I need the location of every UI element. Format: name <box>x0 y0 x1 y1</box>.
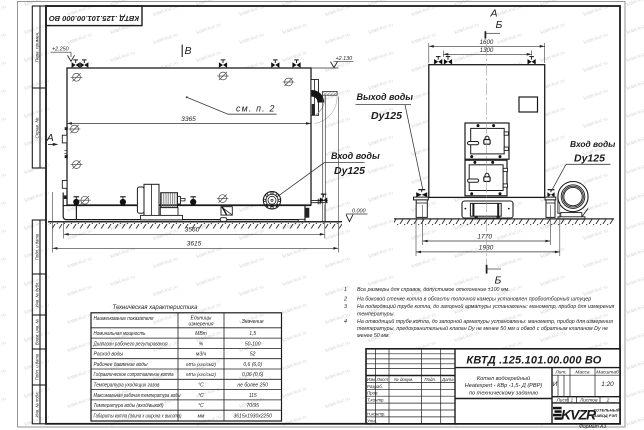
svg-text:Масштаб: Масштаб <box>596 370 619 376</box>
svg-text:Вход воды: Вход воды <box>331 151 380 161</box>
svg-text:°С: °С <box>198 403 204 409</box>
svg-text:2: 2 <box>606 398 610 404</box>
svg-text:В: В <box>185 45 192 57</box>
svg-text:1,5: 1,5 <box>249 331 256 337</box>
svg-text:Dy125: Dy125 <box>334 165 365 177</box>
svg-text:Котел водогрейный: Котел водогрейный <box>477 375 530 382</box>
svg-text:Лист: Лист <box>376 377 389 382</box>
svg-text:Выход воды: Выход воды <box>357 92 414 102</box>
svg-text:КВТД .125.101.00.000 ВО: КВТД .125.101.00.000 ВО <box>49 14 139 23</box>
svg-text:Heatexpert - КВр -1,5- Д (РВР): Heatexpert - КВр -1,5- Д (РВР) <box>465 383 543 389</box>
svg-text:Температура уходящих газов: Температура уходящих газов <box>94 383 160 389</box>
svg-text:А3: А3 <box>599 424 606 430</box>
svg-text:°С: °С <box>198 393 204 399</box>
svg-text:1: 1 <box>344 287 347 293</box>
svg-text:Дата: Дата <box>441 377 454 382</box>
svg-text:115: 115 <box>249 393 257 399</box>
svg-text:Б: Б <box>495 275 502 287</box>
svg-text:Единицы: Единицы <box>191 315 212 321</box>
svg-text:№ докум.: № докум. <box>394 377 413 382</box>
svg-text:Листов: Листов <box>579 398 598 404</box>
svg-text:Формат: Формат <box>579 424 599 430</box>
svg-text:Справ. №: Справ. № <box>34 118 39 139</box>
svg-text:ЗАВОД РЭП: ЗАВОД РЭП <box>594 413 618 418</box>
svg-text:4: 4 <box>344 319 347 325</box>
svg-text:Подп. и дата: Подп. и дата <box>34 353 39 380</box>
svg-text:Dy125: Dy125 <box>371 110 402 122</box>
svg-text:Изм: Изм <box>367 377 375 382</box>
svg-text:Утв.: Утв. <box>367 418 377 423</box>
svg-text:Пров.: Пров. <box>367 391 379 396</box>
svg-text:Б: Б <box>496 19 503 31</box>
svg-text:Рабочее давление воды: Рабочее давление воды <box>94 362 148 368</box>
svg-text:И: И <box>553 381 558 388</box>
svg-text:Инв. № подл.: Инв. № подл. <box>34 392 39 418</box>
svg-text:Разраб.: Разраб. <box>367 384 383 389</box>
svg-text:3560: 3560 <box>185 227 200 234</box>
svg-text:по техническому заданию: по техническому заданию <box>469 390 539 396</box>
svg-text:МВт: МВт <box>195 331 207 337</box>
svg-text:МПа (кгс/см2): МПа (кгс/см2) <box>186 362 216 367</box>
svg-text:Лит.: Лит. <box>554 370 566 376</box>
svg-text:МПа (кгс/см2): МПа (кгс/см2) <box>186 372 216 377</box>
svg-text:Максимальная рабочая температу: Максимальная рабочая температура воды <box>94 393 181 399</box>
svg-text:менее 50 мм.: менее 50 мм. <box>357 333 390 339</box>
svg-text:°С: °С <box>198 383 204 389</box>
svg-text:Инв. № дубл.: Инв. № дубл. <box>34 282 39 308</box>
svg-text:Взам. инв. №: Взам. инв. № <box>34 319 39 345</box>
svg-text:см. п. 2: см. п. 2 <box>236 104 276 114</box>
svg-text:50-100: 50-100 <box>245 341 261 347</box>
svg-text:Диапазон рабочего регулировани: Диапазон рабочего регулирования <box>93 341 168 347</box>
svg-text:1770: 1770 <box>477 233 492 240</box>
svg-text:+2.250: +2.250 <box>52 47 69 53</box>
svg-text:А: А <box>46 132 54 144</box>
svg-text:0,6 (6,0): 0,6 (6,0) <box>243 362 262 368</box>
svg-text:2: 2 <box>343 297 347 303</box>
svg-text:1: 1 <box>570 398 573 404</box>
svg-text:3: 3 <box>344 304 347 310</box>
svg-text:Расход воды: Расход воды <box>94 352 124 358</box>
svg-text:измерения: измерения <box>188 322 213 328</box>
svg-text:Н.контр.: Н.контр. <box>367 411 386 416</box>
svg-text:3615: 3615 <box>187 241 202 248</box>
svg-text:Подп. и дата: Подп. и дата <box>34 233 39 260</box>
svg-text:70/95: 70/95 <box>246 403 259 409</box>
svg-text:температуры, предохранительный: температуры, предохранительный клапан Dу… <box>357 325 608 332</box>
svg-text:0,06 (0,6): 0,06 (0,6) <box>242 372 264 378</box>
svg-text:Т.контр.: Т.контр. <box>367 398 385 403</box>
svg-text:Габариты котла (длина х ширина: Габариты котла (длина х ширина х высота) <box>94 414 182 420</box>
svg-text:KVZR: KVZR <box>561 407 597 423</box>
svg-text:Подп.: Подп. <box>424 377 436 382</box>
svg-text:Лист: Лист <box>556 398 569 404</box>
svg-text:не более 250: не более 250 <box>237 383 268 389</box>
svg-text:температуры.: температуры. <box>357 311 395 317</box>
svg-text:1930: 1930 <box>479 244 494 251</box>
svg-text:Наименование показателя: Наименование показателя <box>94 316 154 322</box>
svg-text:А: А <box>490 7 498 19</box>
svg-text:КВТД .125.101.00.000 ВО: КВТД .125.101.00.000 ВО <box>466 354 601 366</box>
svg-text:Перв. примен.: Перв. примен. <box>34 32 39 63</box>
svg-text:%: % <box>199 341 204 347</box>
svg-text:Вход воды: Вход воды <box>570 139 615 149</box>
svg-text:На отводящий трубе котла, до з: На отводящий трубе котла, до запорной ар… <box>357 318 613 325</box>
svg-text:Масса: Масса <box>575 370 590 376</box>
svg-text:Номинальная мощность: Номинальная мощность <box>94 331 146 337</box>
svg-text:Температура воды (вход/выход): Температура воды (вход/выход) <box>94 403 164 409</box>
svg-text:52: 52 <box>250 352 256 358</box>
svg-text:1:20: 1:20 <box>601 381 614 388</box>
svg-text:м3/ч: м3/ч <box>196 352 207 358</box>
svg-text:3365: 3365 <box>181 116 196 123</box>
svg-text:мм: мм <box>198 414 205 420</box>
svg-text:Гидравлическое сопротивление к: Гидравлическое сопротивление котла <box>94 372 174 378</box>
svg-text:Техническая характеристика: Техническая характеристика <box>113 305 199 311</box>
svg-text:Значение: Значение <box>242 319 264 325</box>
svg-text:На боковой стенке котла в обла: На боковой стенке котла в области топочн… <box>357 296 591 303</box>
svg-text:Все размеры для справок, допус: Все размеры для справок, допустимое откл… <box>357 287 510 293</box>
svg-text:3615х1930х2250: 3615х1930х2250 <box>234 414 273 420</box>
svg-text:Dy125: Dy125 <box>574 152 605 164</box>
svg-text:На подводящий трубе котла, до: На подводящий трубе котла, до запорной а… <box>357 303 615 310</box>
